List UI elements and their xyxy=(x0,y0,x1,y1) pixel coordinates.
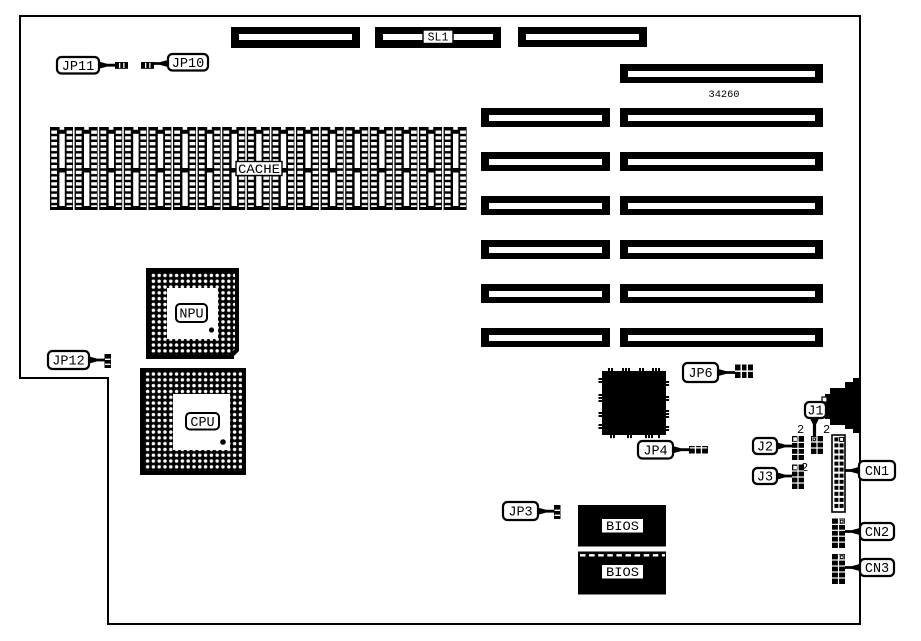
svg-text:CN1: CN1 xyxy=(865,465,889,480)
svg-text:J1: J1 xyxy=(807,405,823,420)
svg-text:BIOS: BIOS xyxy=(606,519,639,534)
svg-text:JP10: JP10 xyxy=(172,57,204,72)
svg-text:SL1: SL1 xyxy=(428,32,449,45)
svg-text:NPU: NPU xyxy=(179,308,203,323)
svg-text:CN2: CN2 xyxy=(865,526,889,541)
svg-text:34260: 34260 xyxy=(709,89,740,101)
svg-text:CACHE: CACHE xyxy=(238,162,280,177)
svg-text:2: 2 xyxy=(823,423,830,437)
svg-text:J3: J3 xyxy=(757,471,773,486)
svg-text:JP12: JP12 xyxy=(52,355,84,370)
svg-text:BIOS: BIOS xyxy=(606,565,639,580)
svg-text:JP4: JP4 xyxy=(643,444,667,459)
svg-text:CN3: CN3 xyxy=(865,562,889,577)
svg-text:JP11: JP11 xyxy=(62,60,94,75)
svg-text:JP6: JP6 xyxy=(688,367,712,382)
svg-text:J2: J2 xyxy=(757,441,773,456)
svg-text:CPU: CPU xyxy=(190,416,214,431)
svg-text:2: 2 xyxy=(797,423,804,437)
svg-text:JP3: JP3 xyxy=(508,506,532,521)
